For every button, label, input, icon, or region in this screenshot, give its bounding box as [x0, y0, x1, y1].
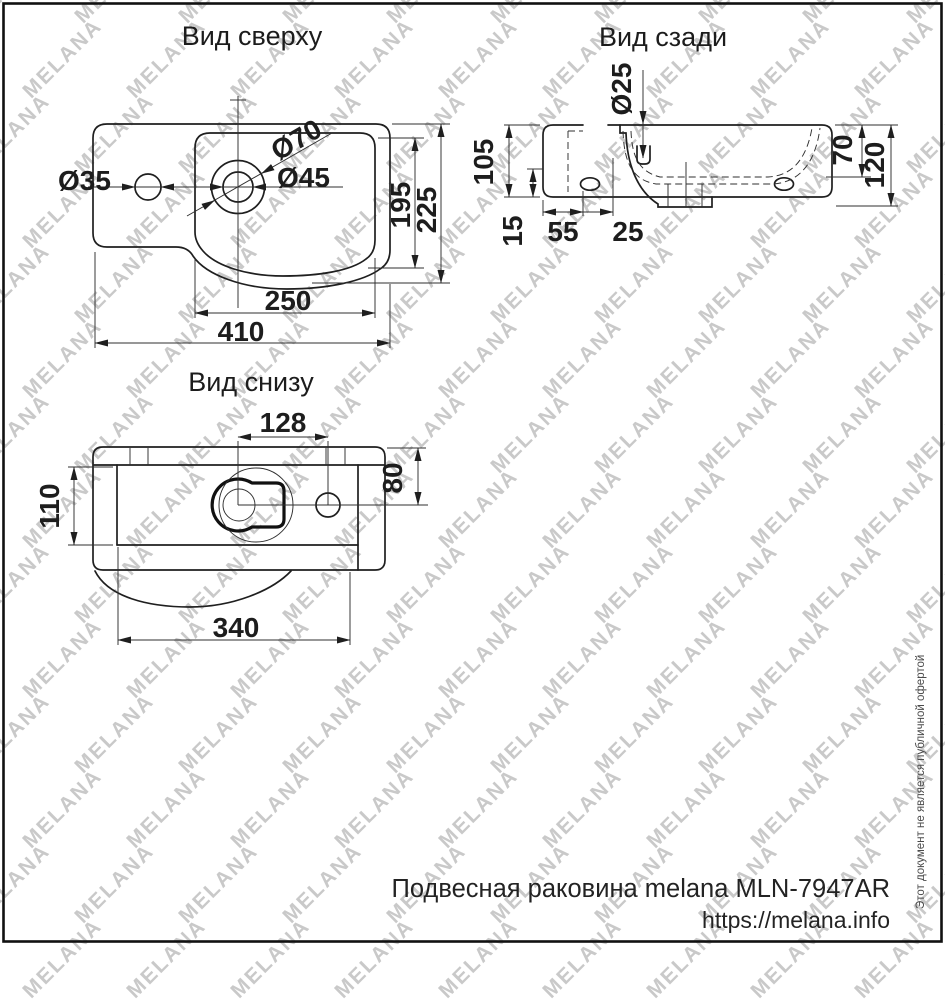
- top-view: Вид сверху Ø35 Ø70: [58, 21, 450, 348]
- top-view-title: Вид сверху: [182, 21, 323, 51]
- bottom-view: Вид снизу 128 80 110 340: [34, 367, 428, 645]
- dim-label-250: 250: [265, 285, 312, 316]
- dim-label-80: 80: [377, 462, 408, 493]
- back-view-bowl-silhouette: [620, 125, 712, 207]
- dim-label-o25: Ø25: [606, 63, 637, 116]
- leader-o70-arrow1: [203, 201, 215, 208]
- dim-label-70: 70: [827, 134, 858, 165]
- bottom-view-title: Вид снизу: [188, 367, 314, 397]
- back-view-title: Вид сзади: [599, 22, 727, 52]
- dim-label-225: 225: [411, 187, 442, 234]
- dim-label-15: 15: [497, 215, 528, 246]
- overflow-hole-section: [637, 146, 650, 164]
- dim-label-105: 105: [468, 139, 499, 186]
- dim-label-110: 110: [34, 483, 65, 528]
- dim-label-o45: Ø45: [277, 162, 330, 193]
- hidden-bowl-outer: [623, 128, 820, 184]
- bowl-projection-arc: [95, 571, 291, 607]
- top-view-outer-outline: [93, 124, 390, 289]
- dim-label-o35: Ø35: [58, 165, 111, 196]
- mounting-hole-left: [581, 178, 600, 190]
- leader-o70-arrow2: [262, 167, 274, 174]
- disclaimer-text: Этот документ не является публичной офер…: [915, 655, 927, 909]
- footer: Подвесная раковина melana MLN-7947AR htt…: [391, 655, 927, 933]
- website-link[interactable]: https://melana.info: [702, 907, 890, 933]
- back-view-plate-outline: [543, 125, 832, 197]
- hidden-bowl-inner: [631, 128, 812, 177]
- back-view: Вид сзади Ø25: [468, 22, 898, 247]
- dim-label-410: 410: [218, 316, 265, 347]
- dim-label-55: 55: [547, 216, 578, 247]
- dim-label-128: 128: [260, 407, 307, 438]
- dim-label-120: 120: [859, 142, 890, 189]
- product-label: Подвесная раковина melana MLN-7947AR: [391, 875, 890, 903]
- dim-label-25: 25: [612, 216, 643, 247]
- dim-label-o70: Ø70: [266, 113, 327, 166]
- technical-drawing: Вид сверху Ø35 Ø70: [0, 0, 945, 945]
- dim-label-340: 340: [213, 612, 260, 643]
